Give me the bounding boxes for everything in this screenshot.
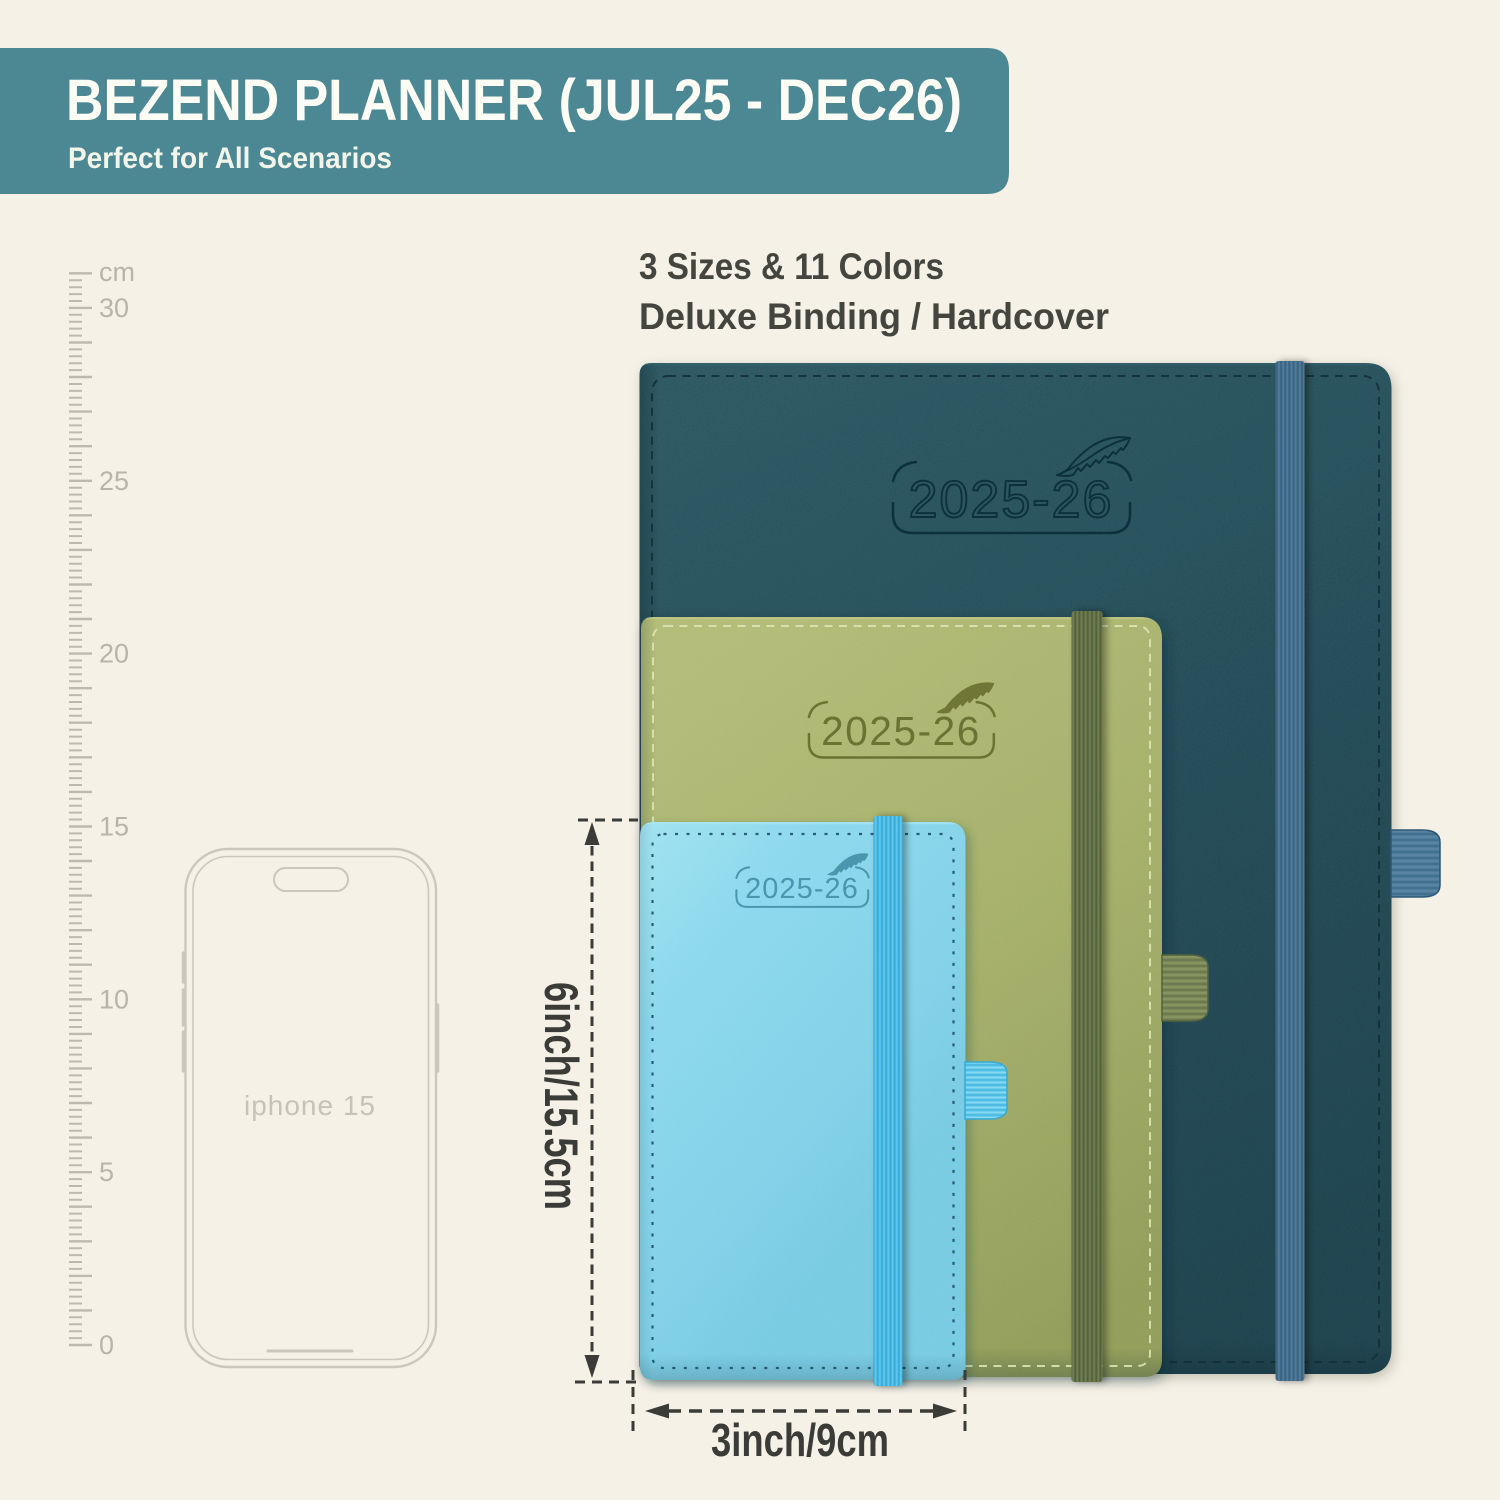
svg-text:2025-26: 2025-26 [821,708,981,754]
svg-text:2025-26: 2025-26 [909,471,1114,529]
svg-text:30: 30 [99,293,129,323]
svg-text:3 Sizes & 11 Colors: 3 Sizes & 11 Colors [639,246,944,287]
svg-text:20: 20 [99,639,129,669]
svg-text:15: 15 [99,812,129,842]
svg-text:BEZEND PLANNER (JUL25 - DEC26): BEZEND PLANNER (JUL25 - DEC26) [66,68,962,133]
svg-text:25: 25 [99,466,129,496]
svg-text:2025-26: 2025-26 [745,873,859,905]
svg-text:Perfect for All Scenarios: Perfect for All Scenarios [68,142,392,175]
svg-text:cm: cm [99,257,135,287]
svg-text:3inch/9cm: 3inch/9cm [711,1414,889,1466]
svg-text:Deluxe Binding / Hardcover: Deluxe Binding / Hardcover [639,296,1109,337]
svg-text:0: 0 [99,1330,114,1360]
svg-text:5: 5 [99,1157,114,1187]
svg-text:6inch/15.5cm: 6inch/15.5cm [535,982,588,1210]
svg-text:10: 10 [99,984,129,1014]
svg-text:iphone 15: iphone 15 [244,1090,376,1121]
